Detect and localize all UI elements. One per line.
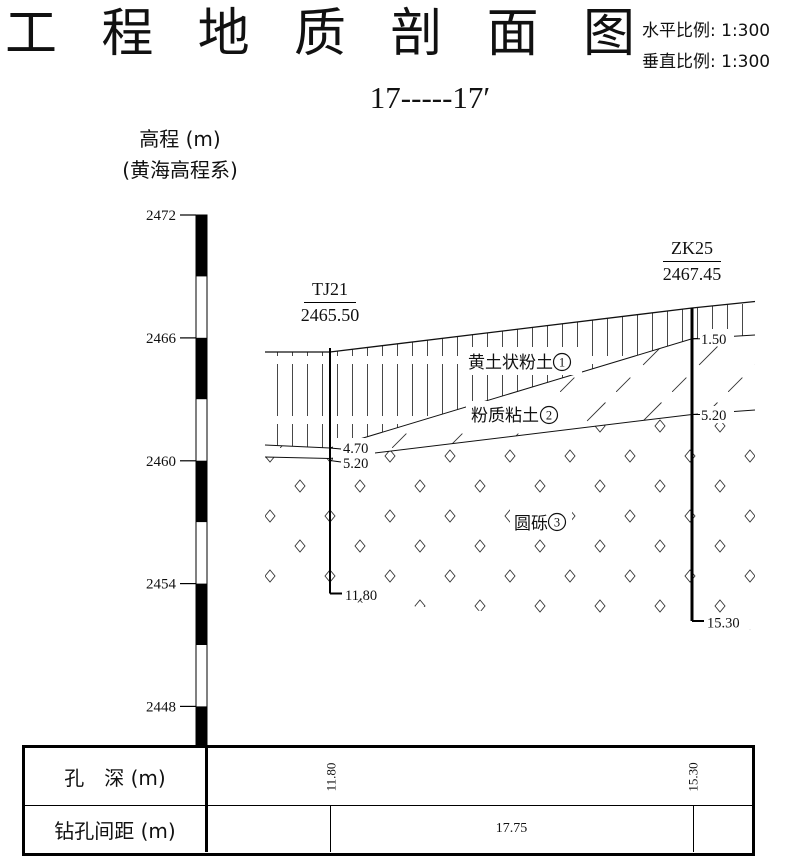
horizontal-scale-note: 水平比例: 1:300 [642, 16, 770, 47]
layer3-label: 圆砾 3 [510, 509, 572, 536]
depth-mark-label: 4.70 [343, 441, 368, 457]
geological-profile-page: 2472 2466 2460 2454 2448 4.70 5.20 11.80 [0, 0, 800, 862]
title-char: 程 [101, 6, 153, 63]
hole-spacing-value: 17.75 [330, 806, 693, 852]
hole-spacing-values: 17.75 [208, 806, 752, 852]
depth-mark-label: 15.30 [707, 616, 740, 632]
value-text: 15.30 [686, 762, 702, 791]
layer1-label: 黄土状粉土 1 [462, 347, 582, 375]
axis-title-line2: (黄海高程系) [90, 155, 270, 186]
tick-label: 2460 [146, 454, 176, 470]
table-row-hole-depth: 孔 深 (m) 11.80 15.30 [25, 748, 752, 806]
title-char: 工 [5, 6, 57, 63]
table-row-hole-spacing: 钻孔间距 (m) 17.75 [25, 806, 752, 852]
depth-mark-label: 5.20 [701, 408, 726, 424]
page-title: 工 程 地 质 剖 面 图 [5, 6, 635, 63]
hole-depth-values: 11.80 15.30 [208, 748, 752, 805]
layer-number: 1 [559, 356, 565, 370]
hole-depth-value-tj21: 11.80 [318, 748, 344, 805]
vertical-scale-note: 垂直比例: 1:300 [642, 47, 770, 78]
axis-title-line1: 高程 (m) [90, 124, 270, 155]
borehole-label-zk25: ZK25 2467.45 [652, 238, 732, 285]
value-text: 11.80 [323, 762, 339, 791]
title-char: 剖 [390, 6, 442, 63]
depth-mark-label: 11.80 [345, 588, 377, 604]
borehole-elevation: 2467.45 [652, 262, 732, 286]
title-char: 图 [583, 6, 635, 63]
title-char: 质 [294, 6, 346, 63]
row-label-hole-spacing: 钻孔间距 (m) [25, 806, 208, 852]
layer-name: 圆砾 [514, 514, 548, 534]
tick-label: 2454 [146, 577, 177, 593]
elevation-axis-title: 高程 (m) (黄海高程系) [90, 124, 270, 186]
layer2-label: 粉质粘土 2 [466, 401, 566, 428]
tick-label: 2466 [146, 331, 177, 347]
layer-name: 黄土状粉土 [468, 353, 553, 373]
elevation-axis-labels: 2472 2466 2460 2454 2448 [146, 208, 177, 715]
elevation-scale-bar [196, 215, 207, 745]
elevation-axis-ticks [180, 215, 196, 706]
table-divider [693, 806, 694, 852]
borehole-label-tj21: TJ21 2465.50 [290, 279, 370, 326]
hole-depth-value-zk25: 15.30 [681, 748, 707, 805]
row-label-hole-depth: 孔 深 (m) [25, 748, 208, 805]
depth-mark-label: 5.20 [343, 456, 368, 472]
tick-label: 2448 [146, 699, 176, 715]
scale-notes: 水平比例: 1:300 垂直比例: 1:300 [642, 16, 770, 79]
title-char: 地 [198, 6, 250, 63]
borehole-elevation: 2465.50 [290, 303, 370, 327]
borehole-name: ZK25 [663, 238, 721, 262]
layer-number: 2 [546, 409, 552, 423]
depth-mark-label: 1.50 [701, 332, 726, 348]
borehole-name: TJ21 [304, 279, 356, 303]
title-char: 面 [487, 6, 539, 63]
layer-number: 3 [554, 516, 560, 530]
layer-name: 粉质粘土 [471, 406, 539, 426]
section-line-label: 17-----17′ [280, 80, 580, 116]
tick-label: 2472 [146, 208, 176, 224]
summary-table: 孔 深 (m) 11.80 15.30 钻孔间距 (m) 17.75 [22, 745, 755, 856]
